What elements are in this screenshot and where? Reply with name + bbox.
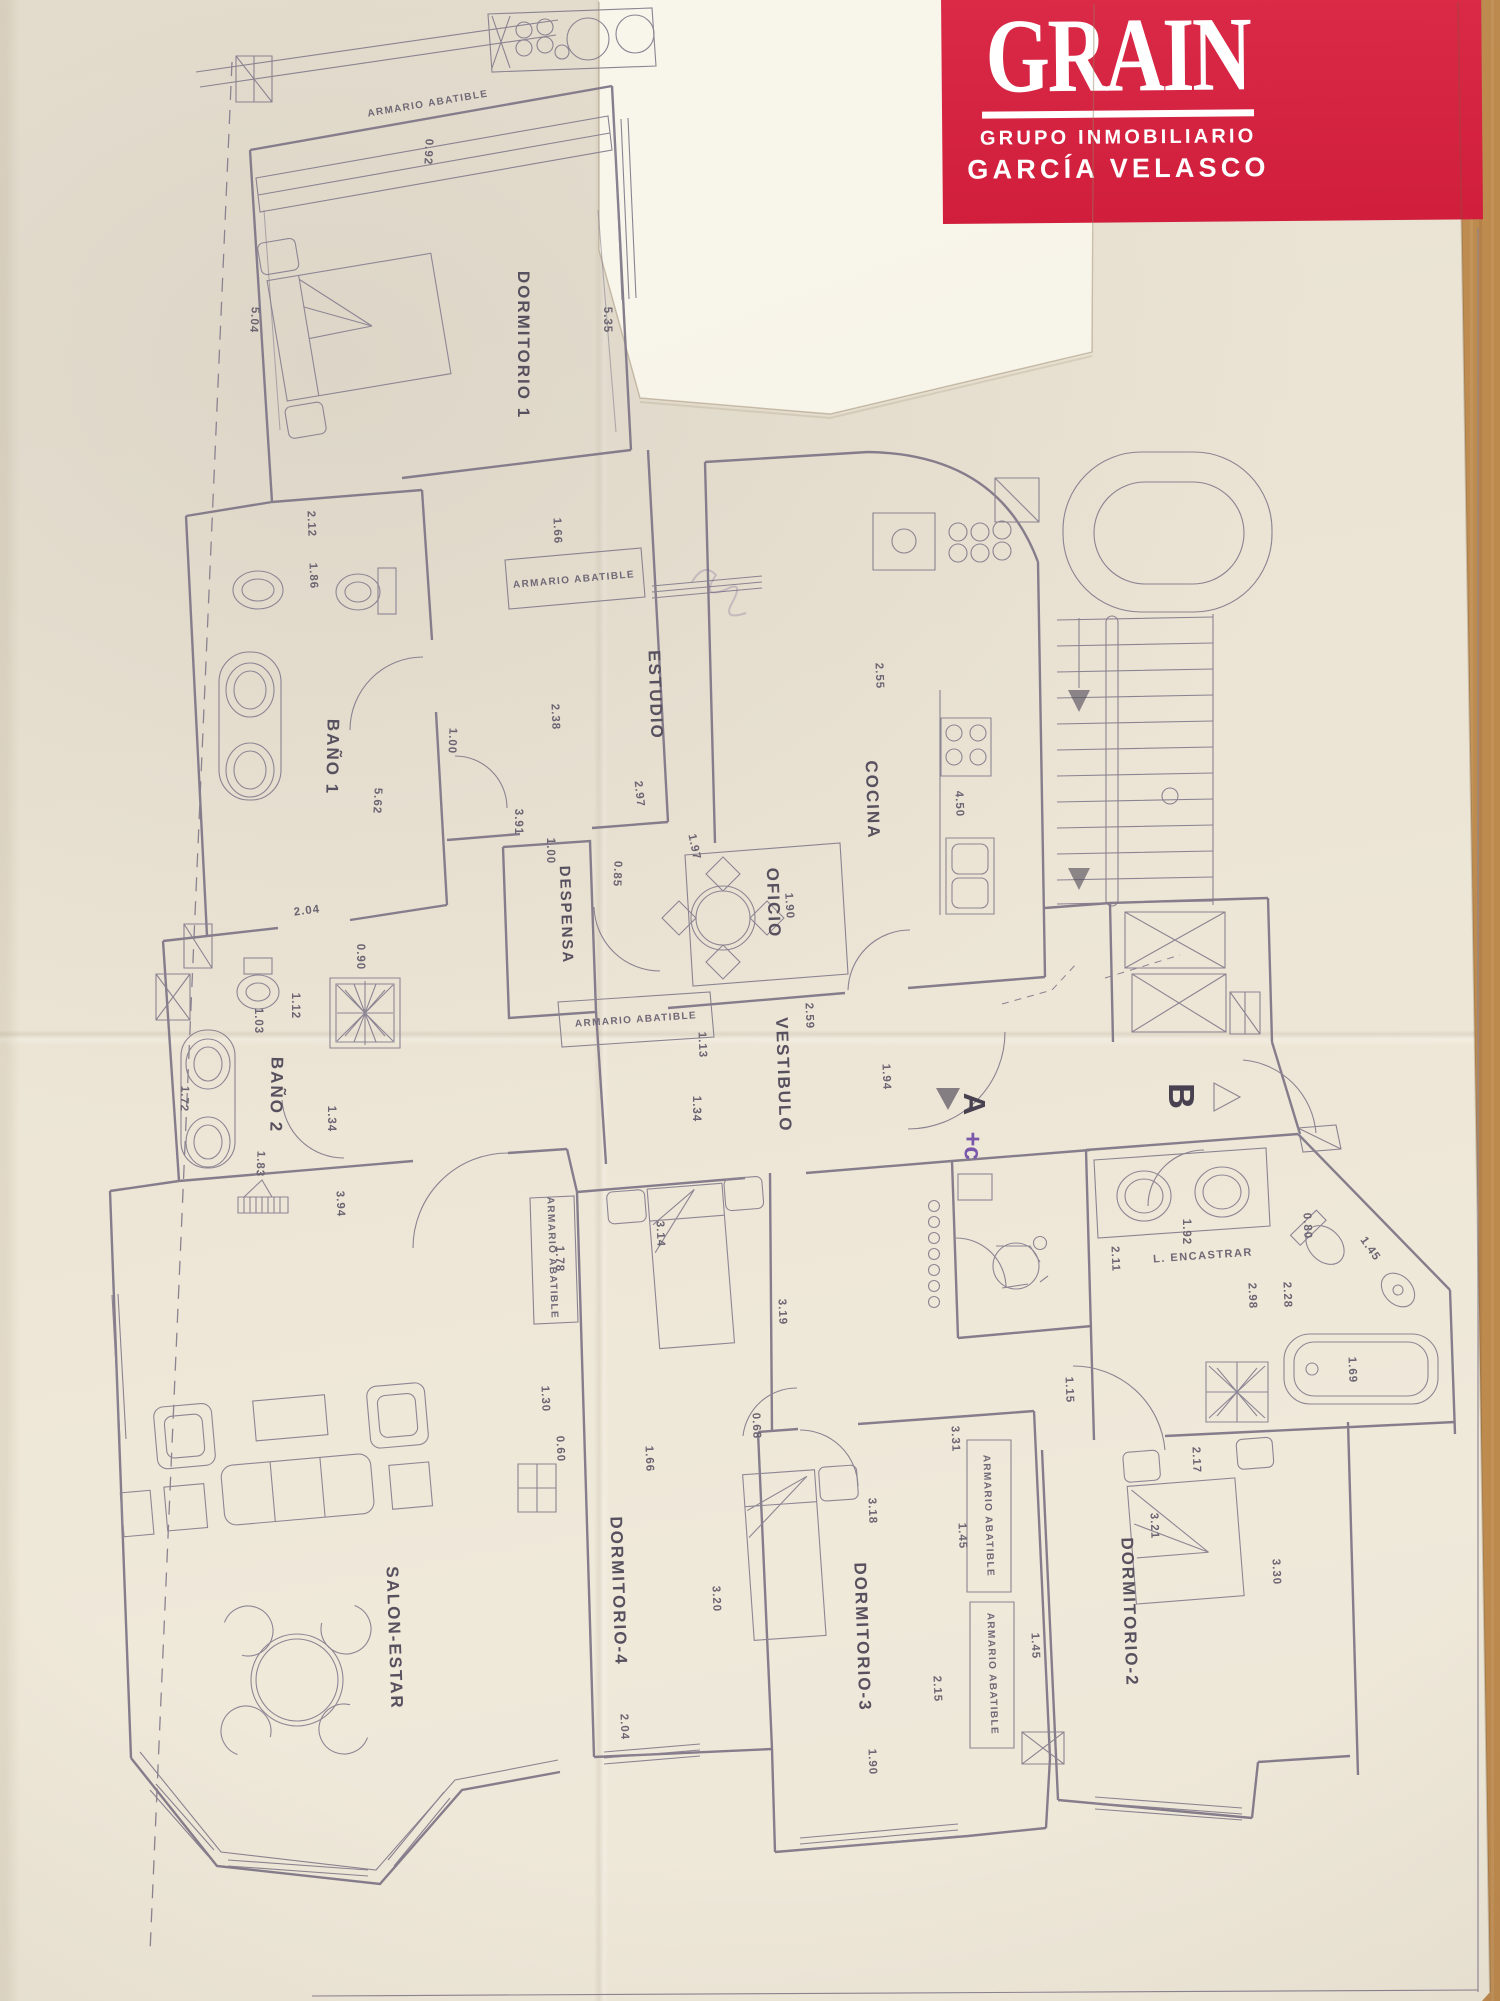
- dimension-label: 3.20: [710, 1586, 723, 1613]
- dimension-label: 1.00: [446, 728, 459, 755]
- dimension-label: 1.66: [643, 1446, 656, 1473]
- dimension-label: 1.92: [1180, 1219, 1192, 1245]
- entrance-label-a-suffix: +c: [958, 1132, 987, 1161]
- dimension-label: 0.80: [1301, 1213, 1314, 1240]
- room-label-cocina: COCINA: [861, 760, 884, 840]
- entrance-label-b: B: [1160, 1083, 1202, 1109]
- dimension-label: 4.50: [953, 791, 966, 818]
- dimension-label: 3.21: [1148, 1513, 1161, 1540]
- entrance-label-a: A: [956, 1093, 992, 1115]
- dimension-label: 2.55: [873, 663, 886, 690]
- dimension-label: 3.14: [654, 1221, 667, 1248]
- dimension-label: 0.85: [611, 861, 624, 888]
- dimension-label: 5.35: [601, 307, 613, 333]
- dimension-label: 2.15: [931, 1676, 944, 1703]
- dimension-label: 3.91: [512, 809, 524, 835]
- dimension-label: 0.92: [421, 139, 434, 166]
- dimension-label: 1.15: [1063, 1377, 1076, 1404]
- dimension-label: 2.98: [1246, 1283, 1259, 1310]
- dimension-label: 2.11: [1109, 1246, 1122, 1272]
- room-label-bano-2: BAÑO 2: [265, 1057, 286, 1134]
- floor-plan-drawing: [0, 0, 1500, 2001]
- room-label-bano-1: BAÑO 1: [321, 719, 342, 796]
- room-label-oficio: OFICIO: [762, 867, 784, 938]
- dimension-label: 1.69: [1346, 1357, 1359, 1384]
- dimension-label: 5.04: [247, 306, 261, 333]
- room-label-dormitorio-1: DORMITORIO 1: [513, 271, 533, 419]
- dimension-label: 1.90: [782, 892, 796, 919]
- dimension-label: 1.00: [544, 838, 556, 864]
- dimension-label: 1.83: [254, 1151, 267, 1178]
- dimension-label: 2.17: [1190, 1447, 1203, 1474]
- dimension-label: 1.03: [252, 1008, 264, 1034]
- dimension-label: 1.94: [880, 1064, 893, 1091]
- dimension-label: 3.18: [866, 1498, 879, 1525]
- dimension-label: 3.30: [1270, 1559, 1283, 1586]
- dimension-label: 1.13: [696, 1032, 709, 1059]
- dimension-label: 1.86: [307, 563, 320, 590]
- dimension-label: 1.66: [551, 518, 564, 545]
- dimension-label: 1.45: [1029, 1633, 1042, 1660]
- dimension-label: 0.90: [354, 944, 366, 970]
- floor-plan-photo: GRAIN GRUPO INMOBILIARIO GARCÍA VELASCO: [0, 0, 1500, 2001]
- dimension-label: 3.31: [949, 1426, 962, 1453]
- dimension-label: 2.12: [305, 511, 318, 538]
- dimension-label: 0.68: [750, 1413, 763, 1440]
- dimension-label: 2.38: [549, 704, 562, 731]
- dimension-label: 3.19: [776, 1299, 789, 1326]
- dimension-label: 1.78: [553, 1246, 565, 1272]
- dimension-label: 1.30: [539, 1386, 552, 1413]
- dimension-label: 1.72: [178, 1086, 191, 1113]
- dimension-label: 2.04: [618, 1714, 631, 1741]
- dimension-label: 1.12: [289, 993, 301, 1019]
- dimension-label: 0.60: [554, 1436, 567, 1463]
- room-label-despensa: DESPENSA: [556, 865, 576, 964]
- dimension-label: 1.45: [956, 1523, 969, 1550]
- dimension-label: 1.34: [690, 1096, 702, 1122]
- dimension-label: 2.59: [803, 1003, 816, 1030]
- dimension-label: 2.28: [1281, 1282, 1294, 1309]
- dimension-label: 3.94: [334, 1191, 347, 1218]
- dimension-label: 5.62: [370, 788, 383, 815]
- dimension-label: 1.90: [866, 1749, 879, 1776]
- dimension-label: 1.34: [325, 1106, 337, 1132]
- room-label-estudio: ESTUDIO: [643, 650, 666, 740]
- room-label-vestibulo: VESTIBULO: [771, 1017, 795, 1133]
